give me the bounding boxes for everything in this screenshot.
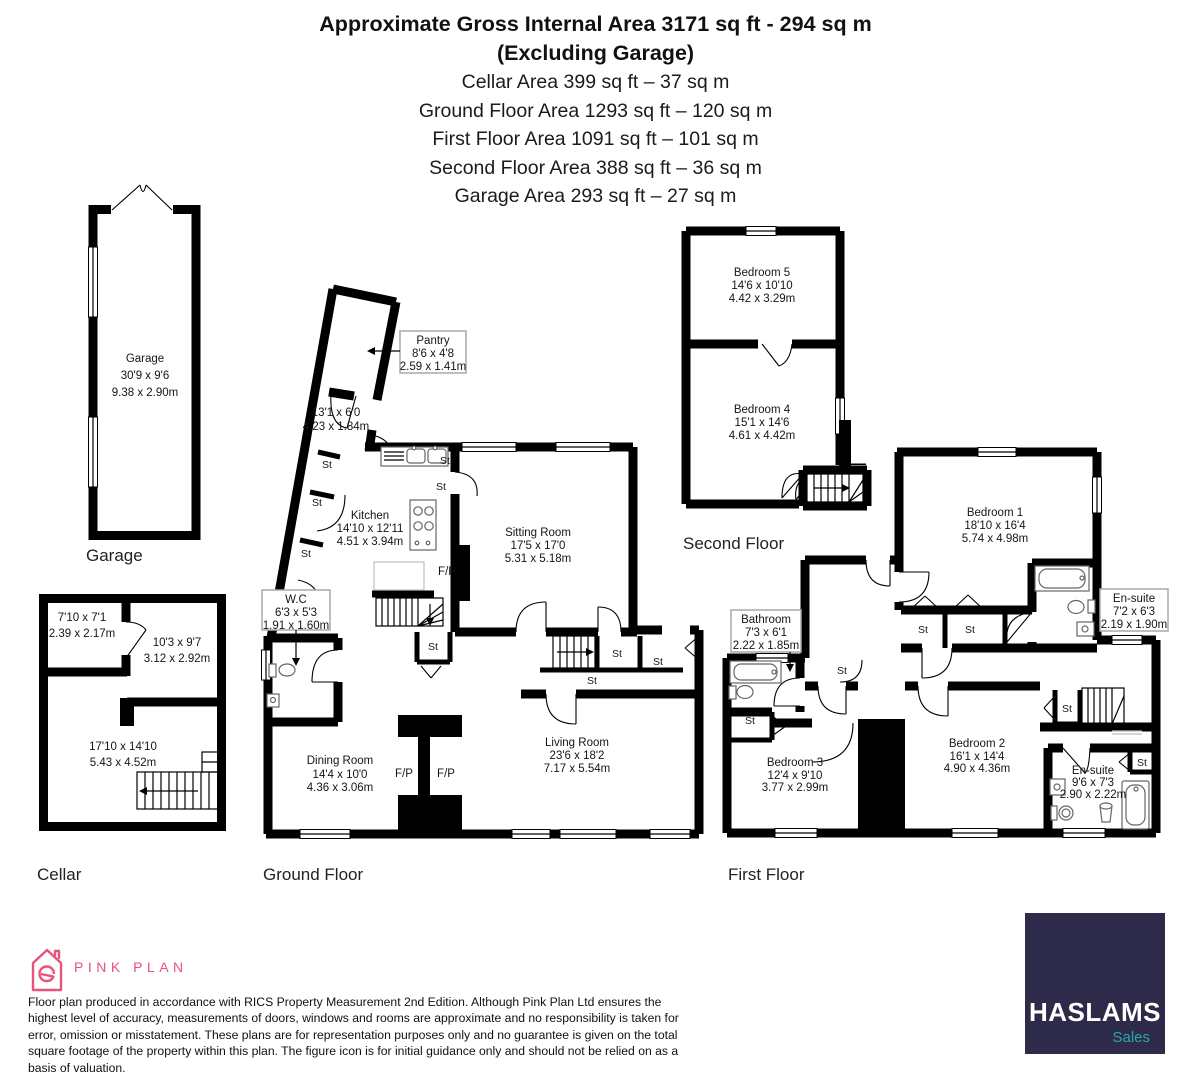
- cellar-room1-imperial: 7'10 x 7'1: [58, 612, 107, 624]
- ensuite1-bath-icon: [1035, 566, 1089, 591]
- bathroom-metric: 2.22 x 1.85m: [733, 640, 799, 652]
- disclaimer-text: Floor plan produced in accordance with R…: [28, 994, 696, 1076]
- sitting-metric: 5.31 x 5.18m: [505, 553, 571, 565]
- first-floor-label: First Floor: [728, 865, 805, 884]
- ensuite2-imperial: 9'6 x 7'3: [1072, 777, 1114, 789]
- bedroom4-metric: 4.61 x 4.42m: [729, 430, 795, 442]
- cellar-room1-metric: 2.39 x 2.17m: [49, 628, 115, 640]
- living-imperial: 23'6 x 18'2: [550, 750, 605, 762]
- garage-floor-label: Garage: [86, 546, 143, 565]
- pantry-name: Pantry: [416, 335, 449, 347]
- bathroom-name: Bathroom: [741, 614, 791, 626]
- cellar-room3-imperial: 17'10 x 14'10: [89, 741, 157, 753]
- sitting-imperial: 17'5 x 17'0: [511, 540, 566, 552]
- garage-window: [89, 247, 98, 317]
- corridor-metric: 4.23 x 1.84m: [303, 421, 369, 433]
- storage-label: St: [428, 641, 438, 653]
- living-name: Living Room: [545, 737, 609, 749]
- bedroom4-imperial: 15'1 x 14'6: [735, 417, 790, 429]
- storage-label: St: [440, 455, 450, 467]
- wc-toilet-icon: [269, 664, 295, 677]
- house-icon: [33, 950, 61, 990]
- fireplace-label: F/P: [437, 768, 455, 780]
- ensuite2-toilet-icon: [1051, 806, 1073, 820]
- fireplace-label: F/P: [438, 566, 456, 578]
- storage-label: St: [301, 548, 311, 560]
- pantry-metric: 2.59 x 1.41m: [400, 361, 466, 373]
- ensuite1-sink-icon: [1077, 622, 1094, 636]
- ensuite1-name: En-suite: [1113, 593, 1155, 605]
- bedroom5-imperial: 14'6 x 10'10: [731, 280, 792, 292]
- corridor-imperial: 13'1 x 6'0: [312, 407, 361, 419]
- garage-room-metric: 9.38 x 2.90m: [112, 387, 178, 399]
- ensuite1-toilet-icon: [1068, 600, 1095, 614]
- wc-sink-icon: [267, 694, 279, 707]
- storage-label: St: [745, 715, 755, 727]
- dining-metric: 4.36 x 3.06m: [307, 782, 373, 794]
- storage-label: St: [312, 497, 322, 509]
- kitchen-name: Kitchen: [351, 510, 389, 522]
- pink-plan-logo: [26, 944, 68, 994]
- storage-label: St: [587, 675, 597, 687]
- dining-imperial: 14'4 x 10'0: [313, 769, 368, 781]
- ground-floor-label: Ground Floor: [263, 865, 363, 884]
- bedroom1-name: Bedroom 1: [967, 507, 1023, 519]
- garage-window: [89, 417, 98, 487]
- bedroom5-metric: 4.42 x 3.29m: [729, 293, 795, 305]
- pantry-imperial: 8'6 x 4'8: [412, 348, 454, 360]
- cellar-room2-imperial: 10'3 x 9'7: [153, 637, 202, 649]
- bedroom2-metric: 4.90 x 4.36m: [944, 763, 1010, 775]
- wc-name: W.C: [285, 594, 307, 606]
- bedroom3-imperial: 12'4 x 9'10: [768, 770, 823, 782]
- second-floor-label: Second Floor: [683, 534, 784, 553]
- storage-label: St: [436, 481, 446, 493]
- ensuite1-metric: 2.19 x 1.90m: [1101, 619, 1167, 631]
- storage-label: St: [1062, 703, 1072, 715]
- living-metric: 7.17 x 5.54m: [544, 763, 610, 775]
- ensuite2-bidet-icon: [1100, 803, 1112, 822]
- cellar-wall-stub: [120, 698, 134, 726]
- kitchen-sink-icon: [381, 446, 448, 466]
- storage-label: St: [918, 624, 928, 636]
- bedroom1-metric: 5.74 x 4.98m: [962, 533, 1028, 545]
- bedroom3-metric: 3.77 x 2.99m: [762, 782, 828, 794]
- bathroom-toilet-icon: [729, 686, 753, 700]
- storage-label: St: [837, 665, 847, 677]
- ensuite2-name: En-suite: [1072, 765, 1114, 777]
- bathroom-bath-icon: [730, 661, 781, 683]
- storage-label: St: [1137, 757, 1147, 769]
- ground-floor-plan: Pantry 8'6 x 4'8 2.59 x 1.41m W.C 6'3 x …: [262, 289, 700, 884]
- bedroom2-name: Bedroom 2: [949, 738, 1005, 750]
- bedroom5-name: Bedroom 5: [734, 267, 790, 279]
- storage-label: St: [965, 624, 975, 636]
- bedroom3-name: Bedroom 3: [767, 757, 823, 769]
- pink-plan-brand: PINK PLAN: [74, 959, 188, 975]
- ensuite1-imperial: 7'2 x 6'3: [1113, 606, 1155, 618]
- first-chimney-column: [858, 719, 905, 833]
- dining-name: Dining Room: [307, 755, 373, 767]
- storage-label: St: [612, 648, 622, 660]
- ensuite1-callout: En-suite 7'2 x 6'3 2.19 x 1.90m: [1100, 589, 1168, 631]
- ensuite2-metric: 2.90 x 2.22m: [1060, 789, 1126, 801]
- wc-imperial: 6'3 x 5'3: [275, 607, 317, 619]
- wc-metric: 1.91 x 1.60m: [263, 620, 329, 632]
- first-wall-stub: [839, 420, 851, 470]
- cellar-plan: 7'10 x 7'1 2.39 x 2.17m 10'3 x 9'7 3.12 …: [37, 594, 226, 884]
- bedroom1-imperial: 18'10 x 16'4: [964, 520, 1026, 532]
- bathroom-imperial: 7'3 x 6'1: [745, 627, 787, 639]
- bedroom4-name: Bedroom 4: [734, 404, 791, 416]
- stove-icon: [410, 500, 436, 550]
- kitchen-imperial: 14'10 x 12'11: [337, 523, 404, 535]
- garage-plan: Garage 30'9 x 9'6 9.38 x 2.90m Garage: [86, 185, 201, 565]
- garage-room-imperial: 30'9 x 9'6: [121, 370, 170, 382]
- cellar-floor-label: Cellar: [37, 865, 82, 884]
- bedroom2-imperial: 16'1 x 14'4: [950, 751, 1006, 763]
- cellar-room3-metric: 5.43 x 4.52m: [90, 757, 156, 769]
- storage-label: St: [322, 459, 332, 471]
- storage-label: St: [653, 656, 663, 668]
- floorplan-canvas: Garage 30'9 x 9'6 9.38 x 2.90m Garage: [0, 0, 1191, 1080]
- garage-door-gap: [111, 203, 173, 215]
- sitting-name: Sitting Room: [505, 527, 571, 539]
- kitchen-metric: 4.51 x 3.94m: [337, 536, 403, 548]
- garage-room-name: Garage: [126, 353, 164, 365]
- swirl-icon: [40, 967, 55, 982]
- haslams-name: HASLAMS: [1025, 997, 1165, 1028]
- sitting-fireplace: [459, 545, 470, 601]
- haslams-division: Sales: [1112, 1029, 1150, 1046]
- fireplace-label: F/P: [395, 768, 413, 780]
- haslams-logo: HASLAMS Sales: [1025, 913, 1165, 1054]
- cellar-room2-metric: 3.12 x 2.92m: [144, 653, 210, 665]
